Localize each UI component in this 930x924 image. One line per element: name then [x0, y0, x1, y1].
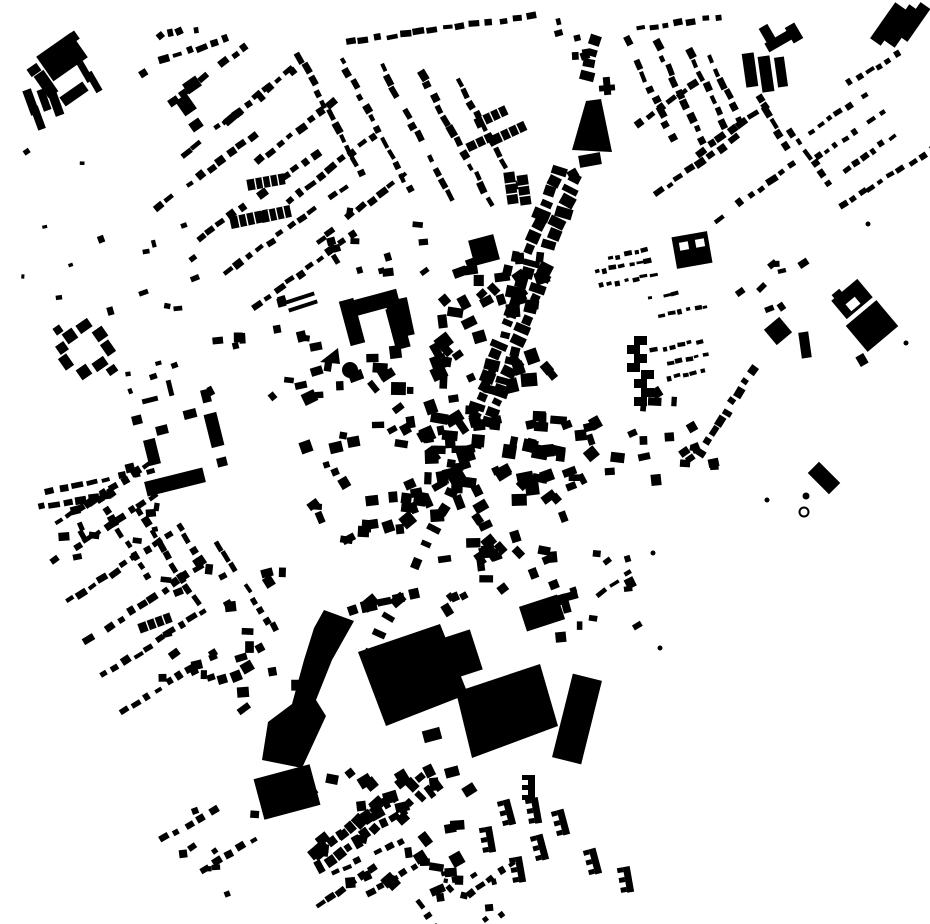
west-blocks [309, 341, 322, 351]
sw-church-cluster [216, 674, 228, 685]
suburb-n-cross-row [460, 88, 469, 100]
suburb-sw-cross-row [221, 550, 231, 563]
hillside-ne-row [845, 78, 853, 86]
suburb-e-row [747, 109, 760, 119]
suburb-n-top-row [400, 30, 412, 38]
suburb-n-top-row [412, 27, 425, 35]
suburb-n-cross-row [314, 89, 322, 98]
apartment-slab-ne [742, 52, 759, 87]
tall-slab-east [552, 674, 602, 765]
sw-hamlet-row [158, 832, 170, 842]
bottom-row [423, 911, 432, 920]
suburb-ne-row [653, 38, 665, 52]
old-town-core [502, 444, 517, 460]
old-town-north [472, 329, 487, 344]
village-core [429, 777, 440, 791]
junction-west [358, 526, 370, 538]
old-town-core [439, 373, 447, 389]
step-house-part [585, 859, 592, 865]
suburb-sw-cross-row [228, 562, 237, 573]
west-blocks [366, 354, 378, 363]
courtyard-block-nw [55, 341, 69, 355]
suburb-sw-row [75, 588, 88, 600]
suburb-sw-row [104, 621, 116, 632]
suburb-sw-cross-row [137, 562, 145, 570]
factory-complex-nw [59, 81, 88, 106]
south-road-row [420, 540, 431, 549]
ne-infill [671, 397, 677, 407]
suburb-nw-row [304, 180, 317, 191]
suburb-sw-row [142, 692, 151, 701]
suburb-n-top-row [443, 24, 453, 29]
terrace-bar [465, 132, 494, 152]
mid-west-infill [294, 381, 307, 390]
west-infill [132, 537, 142, 544]
dash-terrace-row [608, 256, 614, 260]
suburb-nw-row [368, 132, 378, 141]
step-house-part [617, 867, 624, 873]
retail-annex [254, 764, 321, 820]
sw-infill [168, 648, 181, 660]
ne-curve-street-row [733, 386, 746, 399]
suburb-nw-row [226, 146, 237, 157]
suburb-n-cross-row [467, 163, 474, 171]
suburb-nw-row [265, 148, 277, 159]
suburb-n-cross-row [357, 169, 366, 178]
diamond-block [764, 317, 792, 345]
suburb-sw-row [120, 654, 132, 666]
e-mid-sparse [777, 302, 787, 312]
hillside-ne-row [865, 66, 875, 74]
village-core [325, 773, 339, 785]
step-house-part [497, 800, 504, 806]
step-house-part [583, 849, 590, 855]
e-mid-sparse [756, 282, 767, 293]
suburb-sw-cross-row [189, 546, 199, 556]
suburb-ne-row [685, 47, 697, 60]
suburb-e-row [795, 138, 802, 146]
terrace-bar [260, 205, 292, 223]
dash-terrace-row [601, 268, 607, 274]
main-street-north-row [588, 34, 602, 47]
village-street-row [414, 790, 426, 802]
suburb-sw-cross-row [102, 506, 112, 516]
mid-north-infill [356, 266, 363, 274]
suburb-ne-row [696, 70, 705, 82]
left-sparse [106, 306, 114, 316]
old-town-core [465, 405, 479, 415]
suburb-nw-row [163, 193, 174, 203]
courtyard-block-nw [100, 339, 116, 356]
step-house [497, 799, 516, 827]
mid-west-infill [212, 337, 223, 345]
sw-infill [268, 667, 278, 677]
suburb-sw-row [126, 605, 136, 616]
suburb-ne-row [703, 81, 713, 92]
suburb-nw-row [196, 233, 206, 243]
mid-west-infill [302, 335, 310, 342]
school-nw-bits [149, 373, 158, 381]
suburb-n-cross-row [435, 104, 444, 114]
sw-sparse [224, 890, 231, 897]
sw-infill [239, 660, 255, 675]
west-edge-row [63, 499, 73, 507]
west-blocks [405, 416, 415, 429]
sw-sparse [191, 807, 199, 815]
bottom-dots [445, 884, 454, 893]
village-core [417, 831, 433, 847]
suburb-nw-row [274, 76, 282, 84]
old-town-core [472, 419, 485, 431]
mid-left-block [175, 94, 197, 117]
e-mid-sparse [764, 305, 774, 314]
dash-terrace-row [689, 370, 697, 376]
bottom-row [334, 886, 346, 897]
old-town-north [474, 275, 484, 286]
step-house [509, 856, 526, 884]
suburb-e-row [769, 118, 778, 130]
zigzag-flats-part [627, 363, 640, 372]
dash-terrace-row [686, 307, 691, 311]
dash-terrace-row [658, 313, 665, 318]
hillside-ne-row [876, 178, 883, 185]
hillside-ne-row [886, 171, 895, 179]
old-town-west [452, 494, 465, 510]
hillside-ne-row [824, 148, 830, 154]
suburb-ne-top-row [636, 25, 645, 31]
hillside-ne-row [888, 134, 896, 142]
suburb-nw-row [266, 238, 277, 248]
old-town-core [466, 373, 476, 383]
old-town-southeast [537, 545, 550, 556]
suburb-sw-row [88, 582, 97, 590]
suburb-sw-row [54, 517, 63, 525]
suburb-nw-row [357, 138, 367, 147]
hillside-ne-row [908, 158, 918, 167]
suburb-ne-row [660, 120, 669, 129]
old-town-west [442, 430, 459, 441]
west-infill [70, 505, 81, 515]
dash-terrace-row [606, 281, 612, 286]
suburb-n-top-row [484, 19, 492, 26]
dash-terrace-row [608, 264, 616, 270]
ne-infill [627, 428, 638, 438]
top-center-dots [573, 34, 581, 41]
suburb-nw-row [316, 255, 324, 263]
suburb-sw-row [135, 499, 147, 509]
ne-curve-street-row [727, 396, 736, 405]
left-sparse [188, 254, 197, 263]
suburb-nw-row [339, 184, 349, 193]
suburb-sw-row [73, 542, 83, 551]
sw-infill [242, 628, 254, 635]
suburb-sw-cross-row [176, 522, 185, 531]
junction-west [298, 439, 313, 454]
top-center-dots [572, 52, 579, 60]
suburb-n-cross-row [438, 177, 449, 189]
old-town-southeast [558, 510, 569, 523]
suburb-ne-row [694, 125, 701, 133]
bottom-row [324, 892, 336, 903]
south-scatter [577, 621, 583, 629]
courtyard-block-nw [76, 364, 93, 381]
big-box-south [456, 664, 558, 758]
suburb-e-row [714, 131, 727, 143]
west-edge-row [146, 468, 155, 475]
suburb-n-cross-row [326, 108, 336, 121]
sw-hamlet-row [195, 813, 206, 823]
suburb-nw-row [296, 213, 307, 223]
old-town-core [425, 451, 439, 464]
suburb-nw-row [307, 115, 316, 124]
ne-infill [680, 459, 691, 467]
suburb-ne-top-row [673, 18, 683, 26]
map-canvas [0, 0, 930, 924]
old-town-west [401, 492, 413, 504]
suburb-n-top-row [210, 39, 219, 48]
school-nw-bits [155, 360, 162, 366]
boxes-north-row [347, 604, 359, 616]
school-nw-bits [171, 362, 179, 369]
old-town-west [451, 481, 463, 494]
dash-terrace-row [595, 269, 600, 274]
suburb-sw-cross-row [256, 606, 265, 615]
suburb-nw-row [324, 161, 338, 174]
suburb-n-cross-row [332, 121, 344, 135]
terrace-bar-vertical-part [516, 174, 531, 205]
left-sparse [151, 240, 157, 248]
left-sparse [164, 303, 171, 309]
suburb-sw-row [164, 530, 174, 539]
dash-terrace-row [677, 342, 685, 347]
mid-north-infill [326, 237, 336, 247]
suburb-sw-row [96, 573, 109, 584]
suburb-e-row [695, 147, 707, 159]
suburb-ne-row [668, 76, 678, 88]
church-cross-wing [599, 84, 615, 91]
suburb-sw-cross-row [143, 572, 152, 580]
sw-church-cluster [237, 702, 252, 715]
hillside-ne-row [850, 128, 858, 136]
old-town-north [536, 252, 545, 263]
bottom-row [475, 881, 486, 890]
ne-infill [710, 462, 719, 470]
main-street-row-west [523, 243, 535, 255]
suburb-ne-row [729, 101, 739, 112]
courtyard-block-nw [62, 328, 79, 345]
bottom-row [352, 856, 361, 865]
suburb-nw-row [214, 218, 225, 228]
west-edge-row [71, 481, 84, 489]
south-scatter [624, 586, 633, 592]
suburb-ne-row [710, 95, 718, 105]
sw-sparse [179, 849, 188, 858]
top-left-dots [193, 27, 199, 34]
step-house-part [551, 810, 558, 816]
dash-terrace-row [700, 368, 705, 373]
main-street-row-west [500, 331, 510, 339]
mid-north-infill [418, 239, 428, 246]
bottom-dots [485, 904, 494, 912]
sw-infill [270, 621, 279, 632]
south-fringe [440, 602, 454, 617]
school-complex [183, 408, 198, 420]
suburb-e-row [684, 163, 696, 174]
suburb-sw-row [65, 595, 74, 603]
top-left-dots [138, 68, 148, 78]
suburb-e-row [811, 158, 821, 168]
suburb-nw-row [295, 122, 308, 134]
suburb-nw-row [214, 155, 226, 167]
village-street-row [378, 817, 388, 828]
west-infill [72, 553, 82, 561]
school-complex [155, 424, 169, 436]
old-town-north [505, 303, 520, 317]
step-house-part [522, 795, 528, 800]
old-town-core [489, 422, 500, 430]
suburb-nw-row [316, 235, 327, 245]
sw-infill [218, 572, 227, 581]
step-house-part [619, 877, 626, 883]
sw-infill [159, 674, 167, 682]
suburb-sw-cross-row [244, 583, 253, 593]
east-fringe [583, 422, 596, 433]
gas-holder-dot [803, 493, 810, 500]
suburb-nw-row [367, 196, 378, 207]
mid-north-infill [331, 254, 341, 265]
school-complex [143, 438, 161, 466]
suburb-ne-row [659, 55, 666, 63]
sw-infill [205, 564, 214, 575]
suburb-sw-row [131, 699, 142, 709]
suburb-nw-row [223, 266, 234, 276]
suburb-nw-row [276, 139, 285, 148]
west-edge-row [48, 501, 61, 508]
church-annex [578, 152, 602, 168]
suburb-ne-row [623, 35, 633, 47]
step-house-part [502, 820, 509, 826]
west-blocks [387, 425, 398, 435]
e-mid-sparse [797, 258, 809, 269]
dash-terrace-row [624, 250, 633, 256]
mid-west-infill [315, 391, 324, 398]
bottom-row [397, 838, 405, 846]
dash-terrace-row [624, 278, 629, 282]
dash-terrace-row [686, 340, 691, 345]
school-complex [204, 412, 225, 448]
west-blocks [367, 380, 380, 394]
suburb-e-row [765, 174, 779, 186]
hillside-ne-row [918, 151, 928, 160]
suburb-sw-row [143, 643, 154, 652]
boxes-north-bit [389, 592, 406, 609]
far-left-dots [23, 148, 31, 156]
zigzag-flats [627, 336, 647, 372]
suburb-sw-row [82, 633, 96, 645]
school-nw-bits [127, 388, 133, 395]
step-house-part [528, 818, 535, 824]
bottom-row [342, 864, 352, 871]
top-center-dots [554, 29, 563, 37]
bar-block [798, 331, 812, 358]
suburb-ne-top-row [649, 24, 658, 30]
south-fringe [459, 591, 469, 600]
suburb-n-top-row [454, 22, 464, 30]
south-scatter [555, 631, 567, 642]
main-street-row-west [477, 392, 488, 403]
suburb-nw-row [232, 258, 245, 270]
suburb-n-cross-row [368, 114, 375, 122]
suburb-ne-top-row [685, 18, 696, 26]
main-street-row-east [541, 239, 557, 251]
village-street-row [414, 772, 425, 783]
west-blocks [310, 365, 324, 377]
sw-infill [201, 670, 207, 679]
suburb-nw-row [286, 132, 293, 139]
junction-west [339, 431, 347, 439]
hillside-ne-row [877, 139, 885, 147]
suburb-nw-row [256, 187, 269, 200]
suburb-n-top-row [526, 11, 537, 19]
suburb-sw-row [119, 705, 130, 715]
village-core [345, 877, 356, 888]
step-house-part [481, 837, 488, 843]
suburb-n-cross-row [393, 161, 402, 170]
suburb-nw-row [195, 169, 207, 180]
old-town-southeast [565, 481, 577, 491]
sw-hamlet-row [250, 837, 258, 844]
suburb-n-top-row [346, 37, 357, 45]
dash-terrace-row [667, 361, 675, 366]
suburb-n-cross-row [339, 134, 346, 143]
suburb-e-row [634, 118, 645, 129]
east-fringe [586, 433, 596, 445]
suburb-sw-row [161, 587, 170, 595]
west-blocks [372, 422, 384, 429]
step-house [479, 826, 496, 854]
step-house-part [479, 827, 486, 833]
suburb-nw-row [190, 140, 202, 151]
village-core [444, 823, 457, 834]
suburb-n-top-row [158, 54, 171, 64]
hillside-ne-row [893, 49, 901, 58]
bottom-dots [482, 916, 489, 923]
terrace-bar-vertical [516, 174, 531, 205]
suburb-n-cross-row [440, 115, 451, 128]
old-town-north [447, 306, 464, 318]
suburb-n-top-row [172, 52, 182, 58]
mid-north-infill [384, 252, 393, 262]
suburb-sw-cross-row [168, 562, 178, 574]
junction-west [365, 495, 379, 507]
old-town-southeast [512, 494, 527, 506]
village-street-row [313, 859, 325, 874]
dash-terrace-row [663, 293, 671, 298]
west-blocks [336, 381, 344, 390]
suburb-nw-row [274, 283, 287, 295]
courtyard-block-nw [92, 326, 109, 343]
south-fringe [528, 567, 540, 580]
old-town-west [395, 524, 404, 535]
bottom-row [410, 863, 418, 871]
old-town-west [394, 439, 408, 448]
south-road-row [426, 523, 441, 535]
old-town-north [438, 293, 451, 307]
suburb-sw-cross-row [191, 594, 202, 606]
suburb-nw-row [244, 100, 253, 109]
apartment-slab-ne [774, 56, 788, 87]
suburb-e-row [734, 197, 744, 207]
